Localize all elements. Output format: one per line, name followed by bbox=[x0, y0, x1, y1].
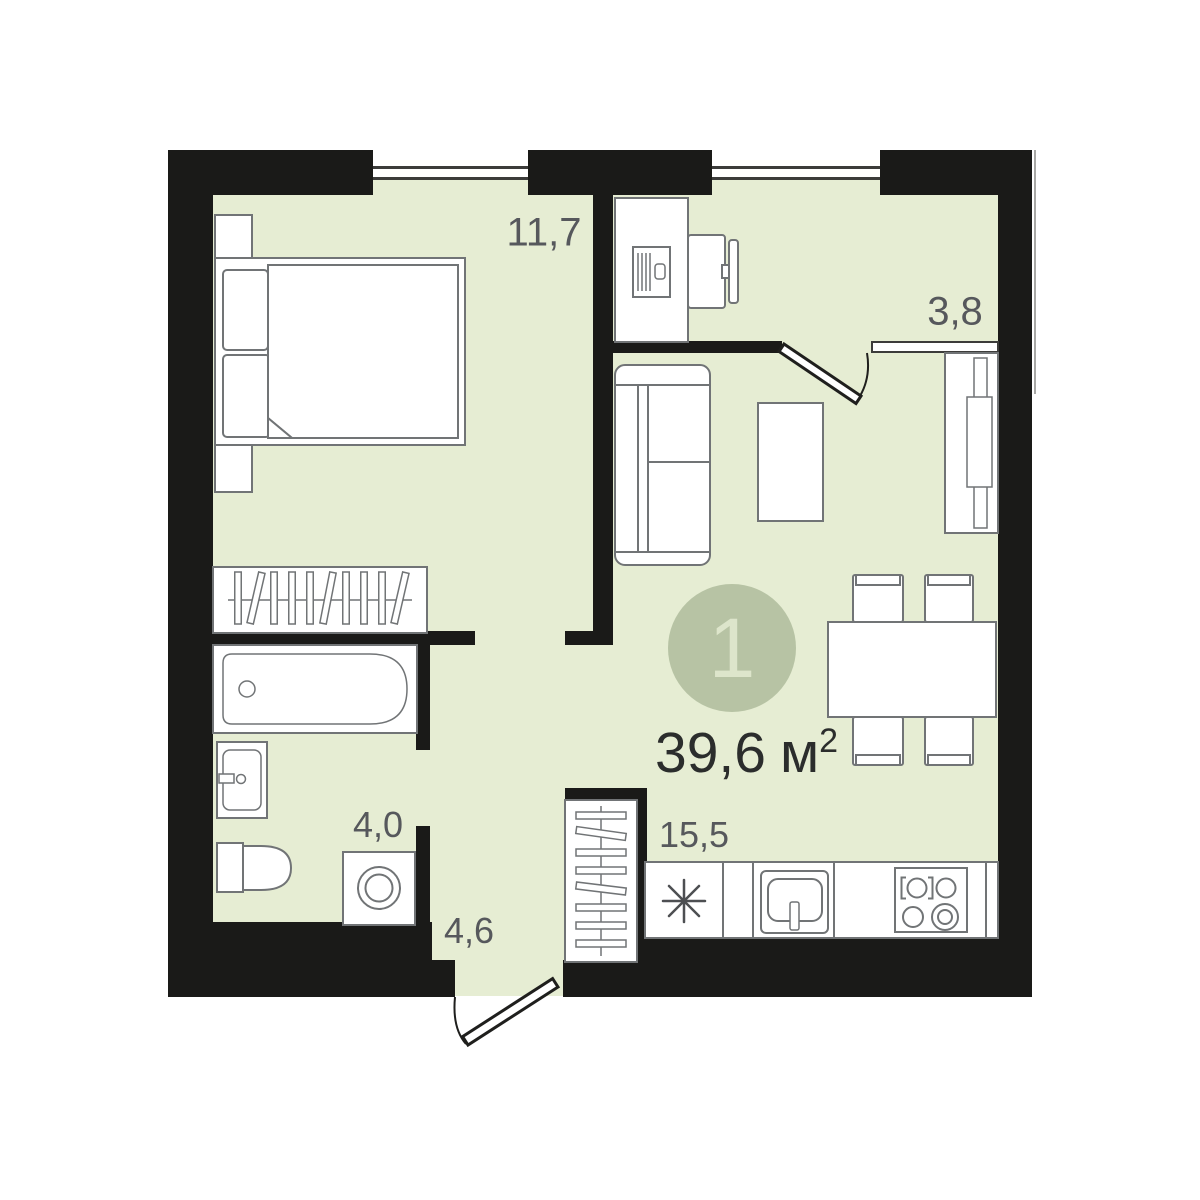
toilet-tank-icon bbox=[217, 843, 243, 892]
faucet-icon bbox=[790, 902, 799, 930]
coffee-table-icon bbox=[758, 403, 823, 521]
wall-shelf-cap bbox=[565, 788, 647, 800]
nightstand-icon bbox=[215, 215, 252, 258]
room-label-bathroom: 4,0 bbox=[353, 804, 403, 846]
burner-icon bbox=[938, 910, 952, 924]
room-label-kitchen-living: 15,5 bbox=[659, 814, 729, 856]
blanket-icon bbox=[268, 265, 458, 438]
drain-icon bbox=[239, 681, 255, 697]
wall-top-middle bbox=[528, 150, 712, 195]
wall-bottom-left bbox=[168, 960, 455, 997]
room-label-hallway: 4,6 bbox=[444, 910, 494, 952]
total-area-unit: м bbox=[780, 721, 819, 785]
wall-right bbox=[998, 150, 1032, 997]
wall-under-kitchen bbox=[637, 938, 998, 962]
burner-icon bbox=[937, 879, 956, 898]
fridge-asterisk-icon bbox=[663, 880, 705, 922]
wall-bottom-right bbox=[563, 960, 1032, 997]
window-icon bbox=[712, 177, 880, 180]
loggia-partition-sill-icon bbox=[872, 342, 998, 352]
wall-left bbox=[168, 150, 213, 997]
wall-top-left bbox=[168, 150, 373, 195]
total-area: 39,6м2 bbox=[655, 725, 838, 782]
office-chair-seat-icon bbox=[688, 235, 725, 308]
computer-button-icon bbox=[655, 264, 665, 279]
window-icon bbox=[712, 166, 880, 169]
washer-drum-icon bbox=[366, 875, 393, 902]
apartment-number-badge: 1 bbox=[668, 584, 796, 712]
window-icon bbox=[373, 177, 528, 180]
dining-table-icon bbox=[828, 622, 996, 717]
pillow-icon bbox=[223, 355, 270, 437]
burner-icon bbox=[903, 907, 923, 927]
room-label-bedroom: 11,7 bbox=[507, 211, 582, 256]
basin-knob-icon bbox=[237, 775, 246, 784]
hallway-furniture bbox=[565, 800, 637, 962]
wall-top-right bbox=[880, 150, 1032, 195]
nightstand-icon bbox=[215, 445, 252, 492]
wall-under-bathroom bbox=[213, 922, 432, 962]
floorplan-canvas: 11,7 3,8 4,0 4,6 15,5 1 39,6м2 bbox=[0, 0, 1200, 1200]
total-area-superscript: 2 bbox=[819, 722, 838, 760]
adjacent-wall-line bbox=[1034, 150, 1036, 394]
wall-divider-foot bbox=[565, 631, 613, 645]
floorplan-drawing bbox=[0, 0, 1200, 1200]
wall-bathroom-upper bbox=[416, 645, 430, 750]
apartment-number: 1 bbox=[709, 600, 756, 697]
burner-icon bbox=[908, 879, 927, 898]
tv-stand-shelf-icon bbox=[967, 397, 992, 487]
wall-bedroom-divider bbox=[593, 195, 613, 645]
bedroom-furniture bbox=[213, 215, 465, 633]
total-area-value: 39,6 bbox=[655, 721, 766, 785]
office-chair-back-icon bbox=[729, 240, 738, 303]
pillow-icon bbox=[223, 270, 268, 350]
basin-tap-icon bbox=[219, 774, 234, 783]
sofa-icon bbox=[615, 365, 710, 565]
wall-bathroom-lower bbox=[416, 826, 430, 925]
room-label-loggia: 3,8 bbox=[927, 290, 983, 335]
window-icon bbox=[373, 166, 528, 169]
kitchen-furniture bbox=[645, 862, 998, 938]
toilet-bowl-icon bbox=[243, 846, 291, 890]
